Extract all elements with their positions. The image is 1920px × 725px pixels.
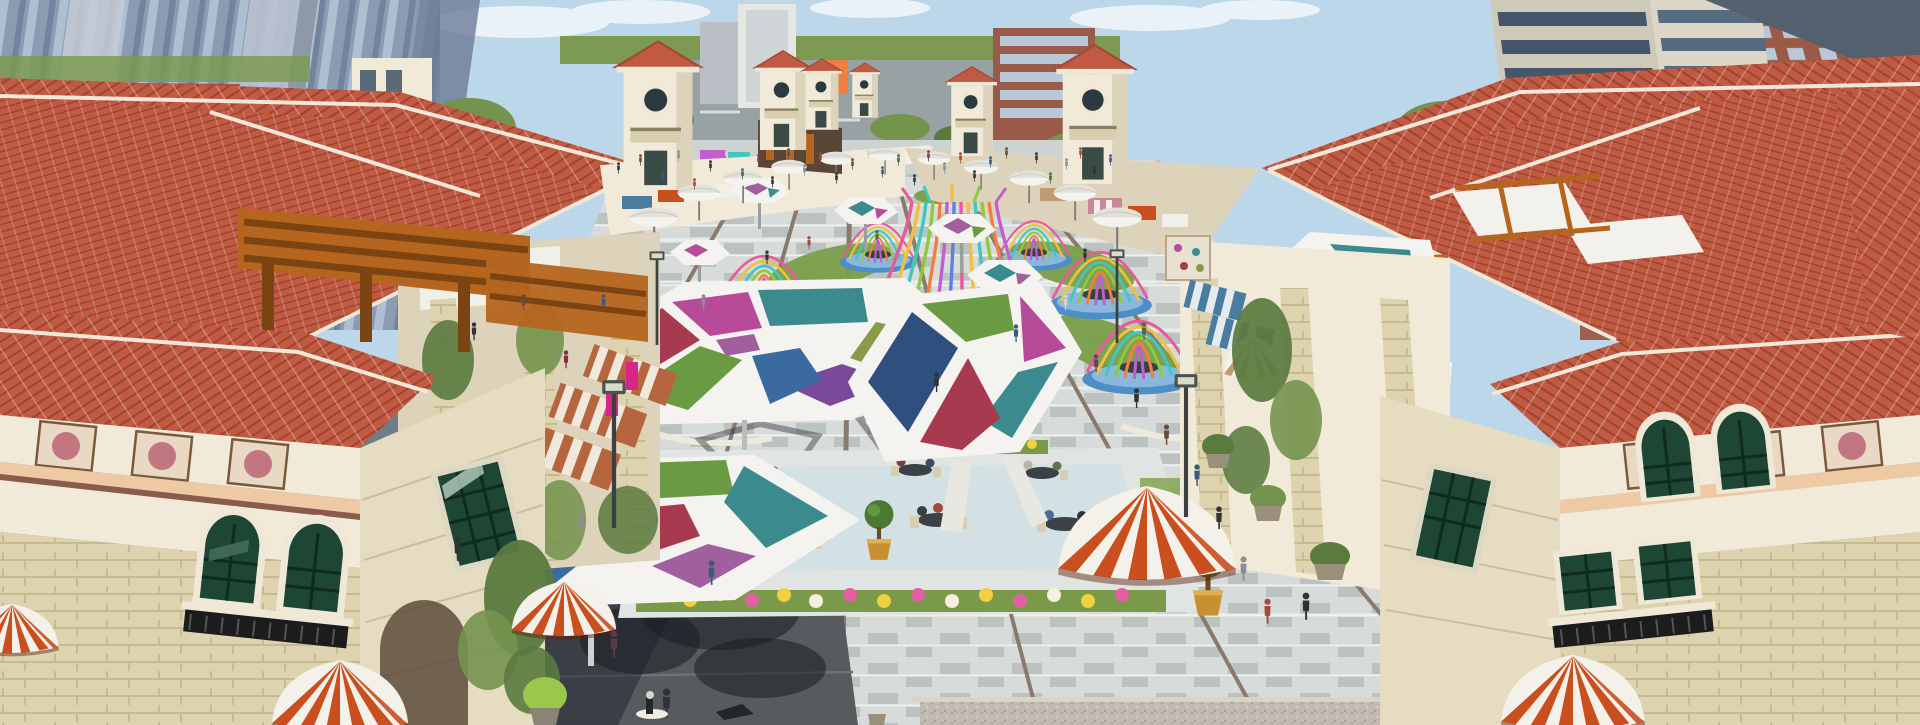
campanile-tower xyxy=(752,50,814,150)
campanile-tower xyxy=(944,66,999,156)
campanile-tower xyxy=(800,58,844,130)
campanile-tower xyxy=(612,40,704,190)
distant-slab-building xyxy=(700,22,742,104)
rendering-viewport xyxy=(0,0,1920,725)
campanile-tower xyxy=(1052,44,1138,184)
shop-banner xyxy=(626,362,638,390)
campanile-tower xyxy=(848,62,882,117)
tile-mural xyxy=(1166,236,1210,280)
plaza-rendering xyxy=(0,0,1920,725)
